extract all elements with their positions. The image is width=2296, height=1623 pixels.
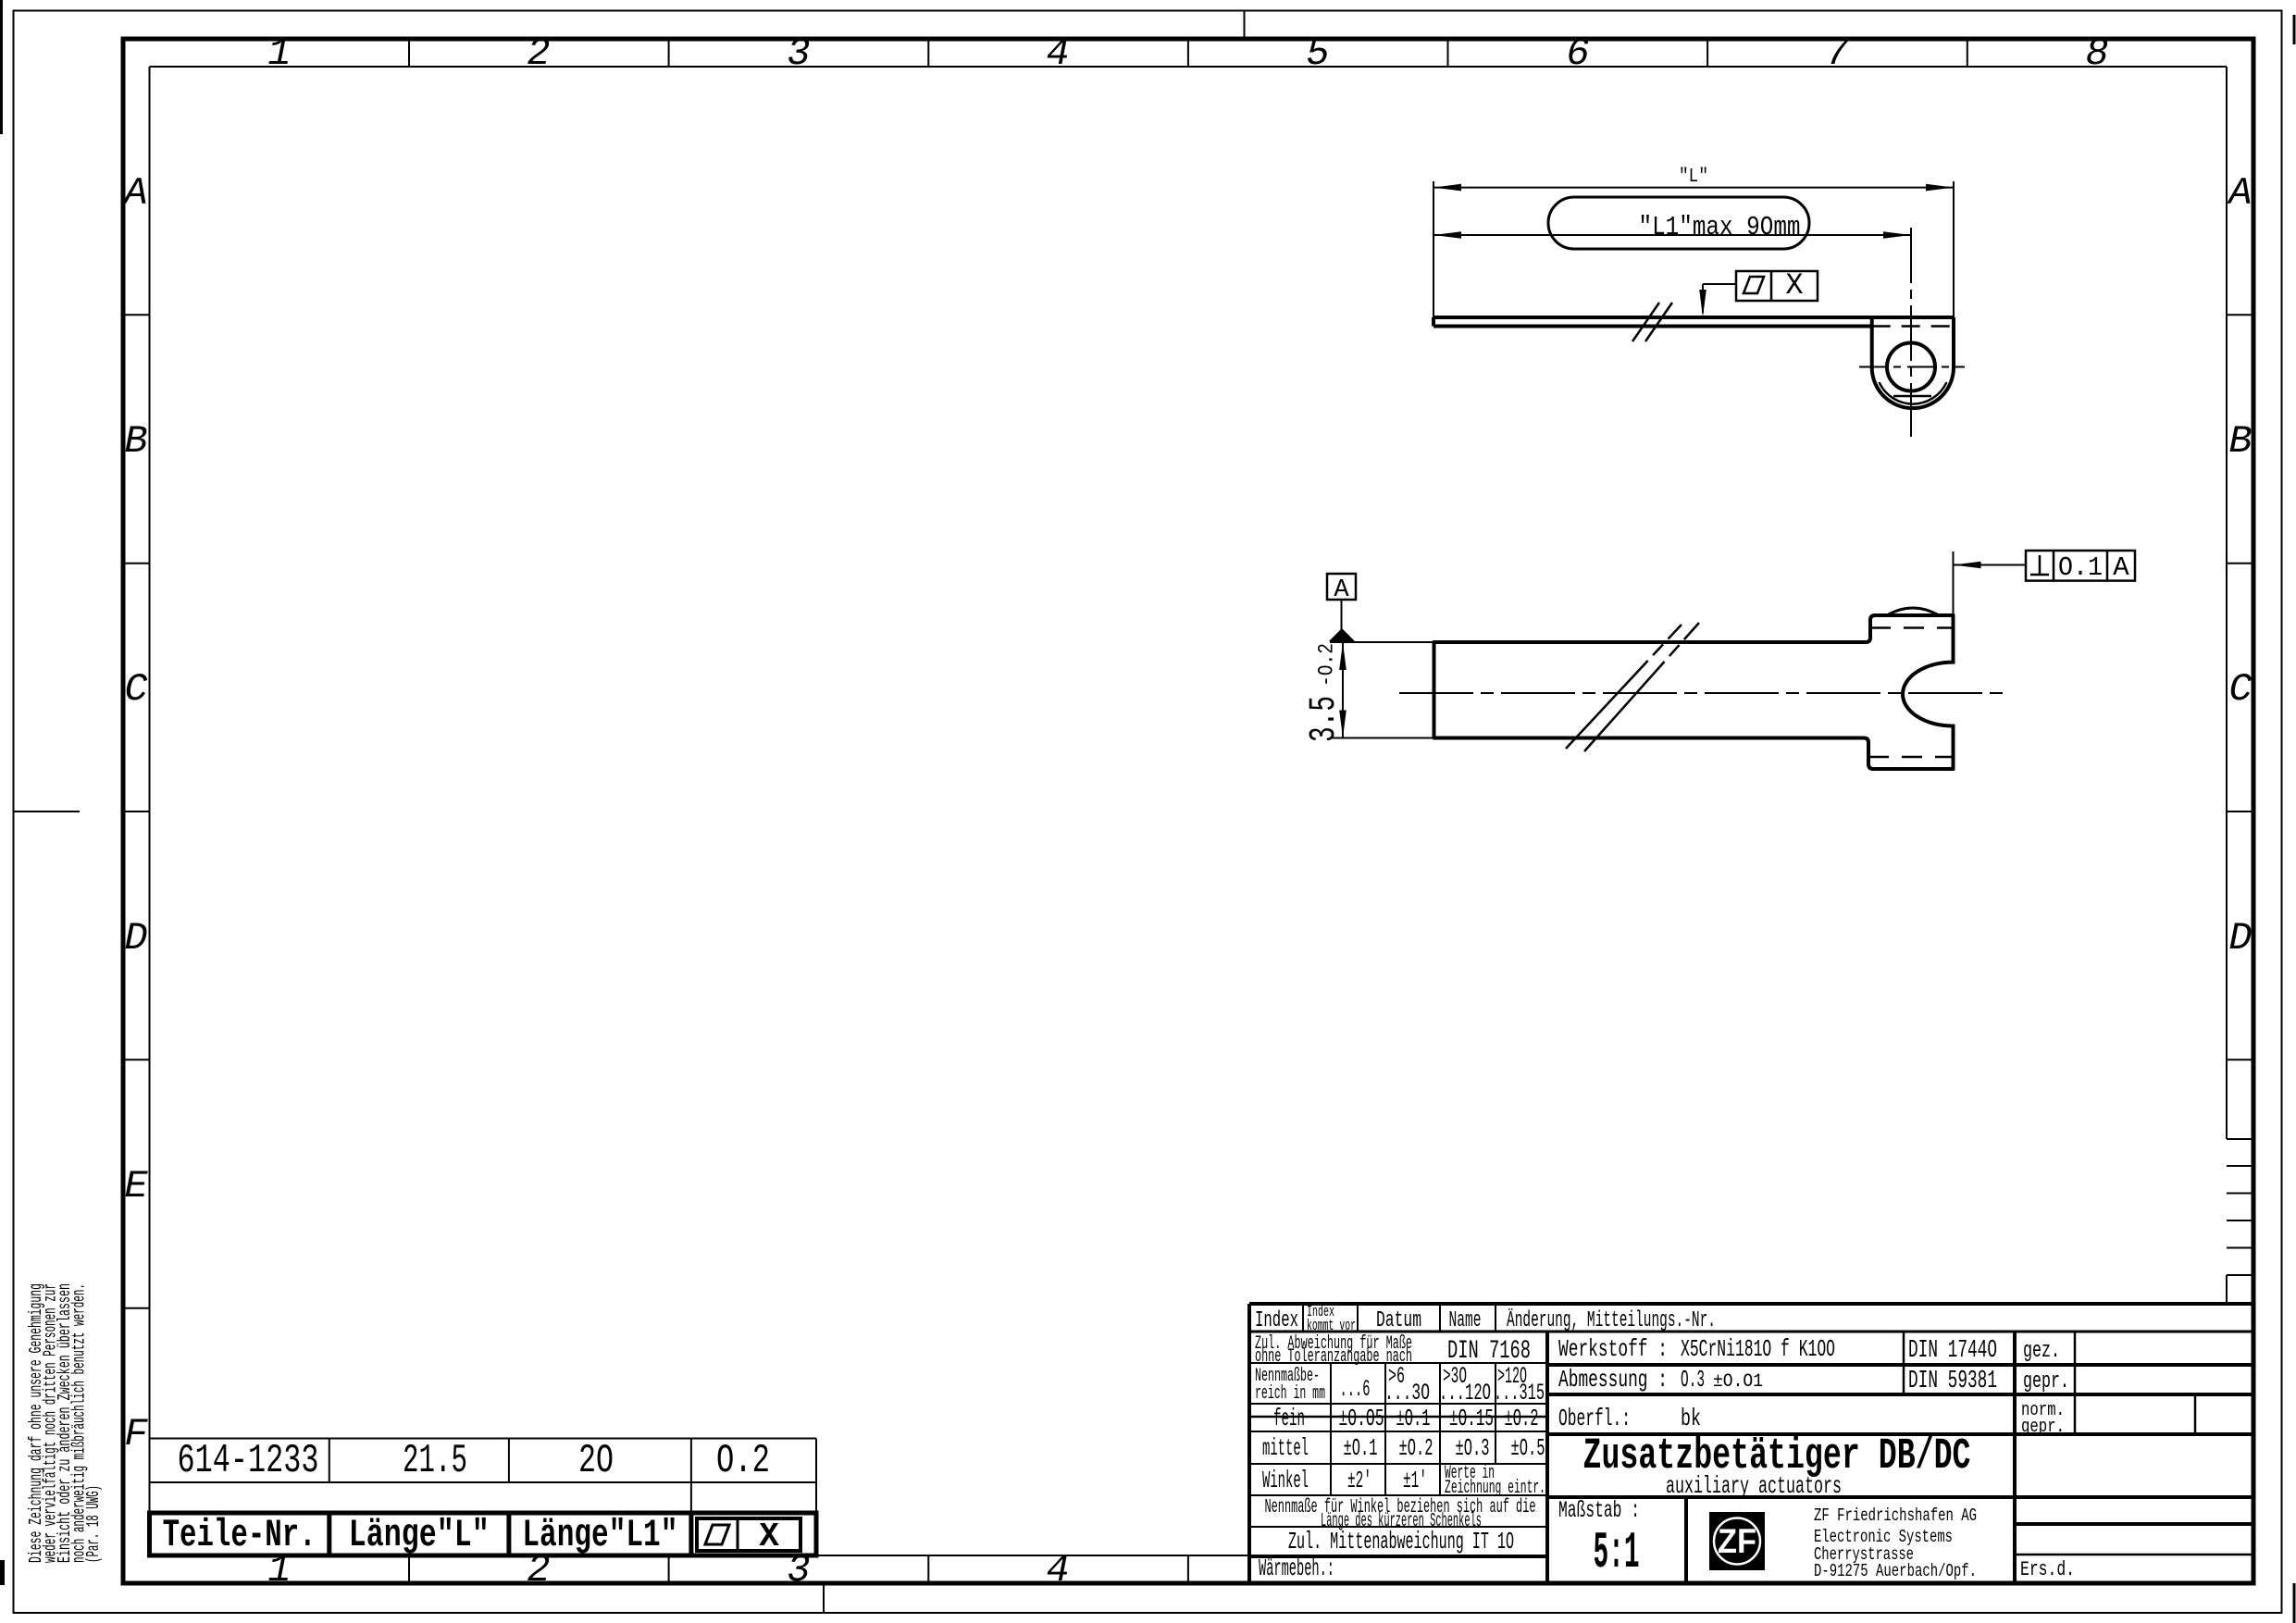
svg-text:auxiliary actuators: auxiliary actuators	[1666, 1472, 1842, 1500]
svg-text:±O.3: ±O.3	[1456, 1434, 1490, 1462]
svg-text:Maßstab :: Maßstab :	[1558, 1497, 1640, 1524]
svg-text:Datum: Datum	[1376, 1308, 1421, 1333]
svg-text:7: 7	[1825, 31, 1849, 76]
svg-text:"L1"max 9Omm: "L1"max 9Omm	[1639, 212, 1801, 242]
svg-text:B: B	[124, 419, 147, 464]
svg-text:E: E	[124, 1164, 148, 1208]
svg-text:Name: Name	[1449, 1308, 1482, 1333]
svg-text:reich in mm: reich in mm	[1255, 1383, 1325, 1405]
svg-text:±O.15: ±O.15	[1449, 1405, 1494, 1432]
svg-text:6: 6	[1566, 31, 1589, 76]
svg-text:(Par. 18 UWG): (Par. 18 UWG)	[83, 1485, 104, 1563]
svg-text:...3O: ...3O	[1384, 1380, 1430, 1406]
svg-text:21.5: 21.5	[403, 1438, 467, 1484]
svg-text:Zeichnung eintr.: Zeichnung eintr.	[1445, 1478, 1545, 1499]
svg-text:D: D	[124, 916, 147, 960]
svg-text:3: 3	[787, 31, 810, 76]
svg-text:±O.O5: ±O.O5	[1339, 1405, 1384, 1432]
svg-text:...315: ...315	[1494, 1380, 1545, 1406]
svg-text:±1': ±1'	[1403, 1467, 1427, 1494]
svg-text:X: X	[759, 1518, 779, 1555]
svg-text:±2': ±2'	[1347, 1467, 1371, 1494]
svg-text:gepr.: gepr.	[2021, 1417, 2065, 1438]
svg-text:ZF: ZF	[1718, 1522, 1756, 1560]
svg-text:O.2: O.2	[716, 1438, 770, 1484]
svg-text:A: A	[2226, 171, 2252, 216]
svg-text:Winkel: Winkel	[1262, 1467, 1309, 1494]
svg-text:D: D	[2228, 916, 2252, 960]
svg-text:±O.2: ±O.2	[1505, 1405, 1539, 1432]
svg-text:A: A	[121, 171, 147, 216]
svg-text:O.3: O.3	[1681, 1366, 1705, 1394]
svg-text:Oberfl.:: Oberfl.:	[1558, 1405, 1631, 1432]
svg-text:4: 4	[1046, 31, 1069, 76]
svg-text:1: 1	[267, 31, 291, 76]
svg-text:X5CrNi181O f K1OO: X5CrNi181O f K1OO	[1681, 1335, 1835, 1363]
svg-text:C: C	[124, 667, 147, 712]
svg-text:±O.5: ±O.5	[1511, 1434, 1545, 1462]
svg-text:Index: Index	[1255, 1308, 1298, 1333]
svg-text:DIN 7168: DIN 7168	[1447, 1337, 1531, 1366]
svg-text:3.5: 3.5	[1304, 696, 1346, 742]
svg-text:Länge"L1": Länge"L1"	[522, 1513, 677, 1557]
svg-text:DIN 1744O: DIN 1744O	[1908, 1337, 1997, 1365]
svg-text:DIN 59381: DIN 59381	[1908, 1368, 1997, 1395]
svg-text:±O.O1: ±O.O1	[1713, 1371, 1763, 1393]
svg-text:"L": "L"	[1679, 167, 1708, 188]
svg-text:Abmessung :: Abmessung :	[1558, 1366, 1668, 1394]
svg-text:O.1: O.1	[2058, 552, 2103, 583]
svg-text:±O.2: ±O.2	[1399, 1434, 1433, 1462]
svg-text:5: 5	[1306, 31, 1329, 76]
svg-text:bk: bk	[1681, 1405, 1701, 1432]
svg-text:gepr.: gepr.	[2023, 1369, 2069, 1394]
svg-text:...6: ...6	[1340, 1376, 1371, 1403]
svg-text:Zul. Mittenabweichung IT 1O: Zul. Mittenabweichung IT 1O	[1288, 1528, 1514, 1555]
svg-text:mittel: mittel	[1262, 1434, 1309, 1462]
svg-text:614-1233: 614-1233	[178, 1438, 319, 1484]
svg-text:Änderung, Mitteilungs.-Nr.: Änderung, Mitteilungs.-Nr.	[1507, 1307, 1716, 1333]
svg-text:C: C	[2228, 667, 2252, 712]
svg-text:D-91275 Auerbach/Opf.: D-91275 Auerbach/Opf.	[1814, 1561, 1977, 1581]
svg-text:fein: fein	[1273, 1405, 1305, 1432]
svg-text:Ers.d.: Ers.d.	[2020, 1558, 2075, 1581]
svg-text:2O: 2O	[578, 1438, 614, 1484]
svg-text:2: 2	[527, 31, 550, 76]
svg-text:B: B	[2228, 419, 2252, 464]
svg-text:X: X	[1785, 268, 1803, 303]
svg-text:-O.2: -O.2	[1315, 643, 1339, 687]
svg-text:Wärmebeh.:: Wärmebeh.:	[1259, 1555, 1334, 1582]
svg-text:±O.1: ±O.1	[1396, 1405, 1431, 1432]
svg-text:8: 8	[2085, 31, 2108, 76]
svg-text:...12O: ...12O	[1439, 1380, 1491, 1406]
svg-text:5:1: 5:1	[1594, 1523, 1640, 1582]
svg-text:Teile-Nr.: Teile-Nr.	[163, 1513, 316, 1557]
svg-text:±O.1: ±O.1	[1344, 1434, 1378, 1462]
svg-text:gez.: gez.	[2023, 1339, 2060, 1364]
svg-text:Länge"L": Länge"L"	[349, 1513, 490, 1557]
svg-text:ZF Friedrichshafen AG: ZF Friedrichshafen AG	[1814, 1505, 1977, 1526]
svg-text:A: A	[2113, 552, 2129, 583]
svg-text:F: F	[124, 1412, 148, 1456]
svg-text:4: 4	[1046, 1548, 1069, 1592]
svg-text:Werkstoff :: Werkstoff :	[1558, 1335, 1668, 1363]
